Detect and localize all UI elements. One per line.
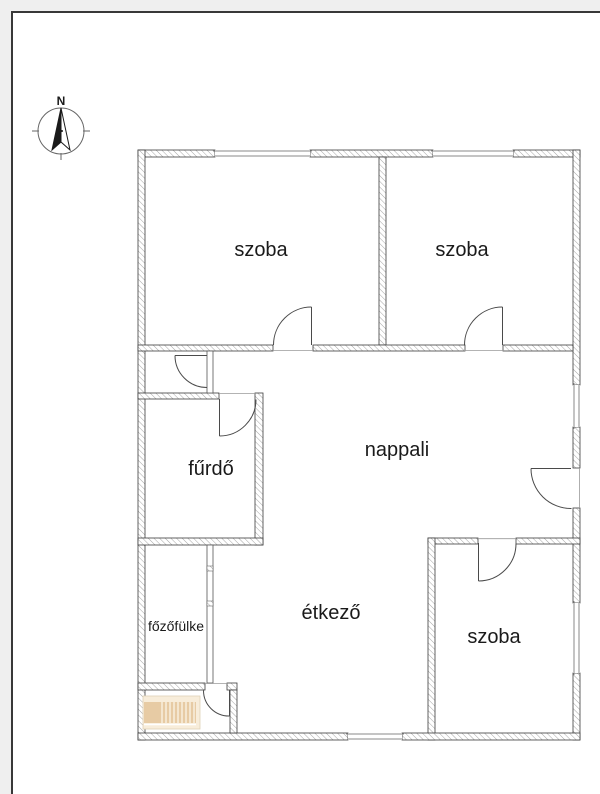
north-arrow-right-half — [61, 108, 70, 150]
window-nappali — [573, 383, 580, 429]
wall-segment — [402, 733, 580, 740]
wall-segment — [379, 157, 386, 345]
partition-joint — [207, 601, 213, 606]
room-label-fozofulke: főzőfülke — [148, 618, 204, 634]
partition-walls — [207, 351, 213, 683]
wall-segment — [138, 345, 273, 351]
room-label-szoba-top-left: szoba — [234, 239, 288, 261]
wall-segment — [138, 683, 205, 690]
door-szoba-top-right — [464, 307, 504, 351]
compass-north-label: N — [57, 94, 66, 108]
floorplan-drawing: N — [0, 0, 600, 794]
wall-segment — [227, 683, 237, 690]
wall-segment — [138, 150, 215, 157]
wall-segment — [573, 150, 580, 385]
door-wc — [175, 356, 207, 388]
window-szoba-top-left — [213, 150, 312, 157]
wall-segment — [310, 150, 433, 157]
wall-segment — [573, 508, 580, 603]
compass-center-dot — [61, 130, 63, 132]
room-labels: szoba szoba nappali fűrdő étkező főzőfül… — [148, 239, 522, 648]
kitchenette-partition — [207, 545, 213, 683]
wc-partition — [207, 351, 213, 393]
window-szoba-top-right — [431, 150, 515, 157]
wall-segment — [428, 538, 435, 740]
wall-segment — [230, 690, 237, 733]
wall-segment — [255, 393, 263, 545]
door-entry — [204, 684, 230, 717]
walls — [138, 150, 580, 740]
page-background: N — [0, 0, 600, 794]
wall-segment — [138, 393, 219, 399]
north-arrow-left-half — [52, 108, 61, 150]
wall-segment — [573, 427, 580, 468]
wall-segment — [503, 345, 573, 351]
wall-segment — [513, 150, 580, 157]
room-label-szoba-bottom: szoba — [467, 626, 521, 648]
wall-segment — [313, 345, 465, 351]
stair-tread-lines — [162, 702, 194, 723]
wall-segment — [428, 538, 478, 544]
door-bathroom — [219, 394, 256, 437]
partition-joint — [207, 566, 213, 571]
wall-segment — [573, 673, 580, 740]
room-label-furdo: fűrdő — [188, 458, 234, 480]
doors — [175, 307, 580, 716]
room-label-szoba-top-right: szoba — [435, 239, 489, 261]
door-szoba-bottom — [478, 539, 516, 581]
window-etkezo — [346, 733, 404, 740]
wall-segment — [138, 538, 263, 545]
door-balcony — [531, 468, 580, 509]
wall-segment — [138, 733, 348, 740]
wall-segment — [138, 150, 145, 740]
room-label-etkezo: étkező — [302, 602, 361, 624]
staircase — [143, 696, 200, 729]
door-szoba-top-left — [273, 307, 313, 351]
wall-segment — [516, 538, 580, 544]
room-label-nappali: nappali — [365, 439, 430, 461]
compass-rose: N — [32, 94, 90, 160]
window-szoba-bottom — [573, 601, 580, 675]
